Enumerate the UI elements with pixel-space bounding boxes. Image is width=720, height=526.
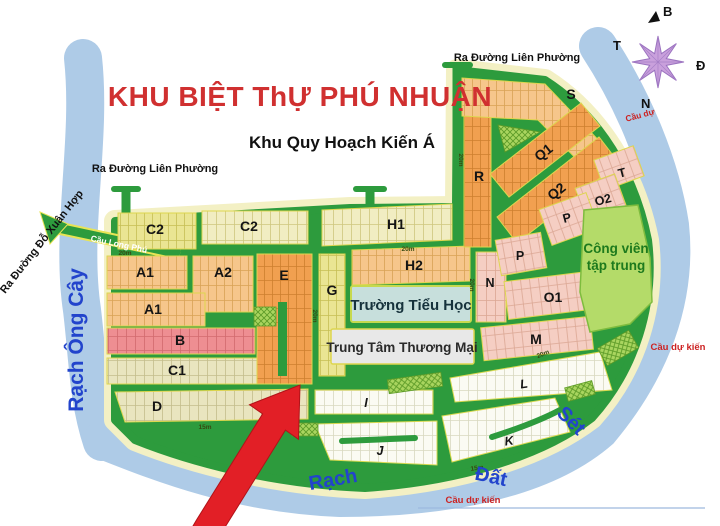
central-park-label-line2: tập trung — [587, 258, 646, 273]
block-label-e: E — [279, 267, 288, 283]
compass-north-label: B — [663, 4, 672, 19]
road-width-label: 20m — [457, 153, 464, 166]
map-title: KHU BIỆT ThỰ PHÚ NHUẬN — [108, 81, 492, 112]
block-label-d: D — [152, 398, 162, 414]
block-i — [315, 390, 433, 414]
park-patch — [254, 307, 276, 326]
block-label-b: B — [175, 332, 185, 348]
river-label-ong-cay: Rạch Ông Cây — [64, 268, 88, 412]
mall-label: Trung Tâm Thương Mại — [326, 340, 477, 355]
block-label-g: G — [327, 282, 338, 298]
road-j-loop — [342, 438, 415, 441]
school-label: Trường Tiểu Học — [350, 297, 471, 314]
road-width-label: 20m — [401, 246, 414, 253]
block-label-c2-west: C2 — [146, 221, 164, 237]
block-label-h1: H1 — [387, 216, 405, 232]
block-label-o1: O1 — [544, 289, 563, 305]
central-park-label-line1: Công viên — [583, 241, 648, 256]
block-label-s: S — [566, 86, 575, 102]
road-width-label: 15m — [198, 424, 211, 431]
block-label-j: J — [377, 444, 385, 458]
bridge-label-du-kien-south: Cầu dự kiến — [446, 495, 501, 506]
block-label-n: N — [485, 276, 494, 290]
block-label-a1-upper: A1 — [136, 264, 154, 280]
block-label-p-lower: P — [516, 249, 524, 263]
block-label-a1-lower: A1 — [144, 301, 162, 317]
compass-north-pointer-icon — [648, 11, 660, 23]
compass-west-label: T — [613, 38, 621, 53]
block-label-h2: H2 — [405, 257, 423, 273]
compass-east-label: Đ — [696, 58, 705, 73]
exit-label-lien-phuong-north: Ra Đường Liên Phường — [454, 52, 580, 64]
block-label-r: R — [474, 168, 484, 184]
block-label-c1: C1 — [168, 362, 186, 378]
exit-label-lien-phuong-west: Ra Đường Liên Phường — [92, 163, 218, 175]
road-e-inner — [278, 302, 287, 376]
road-width-label: 20m — [311, 309, 318, 322]
compass-south-label: N — [641, 96, 650, 111]
map-canvas: C2 C2 H1 A1 A2 A1 B C1 D E G H2 N R S Q1… — [0, 0, 720, 526]
road-width-label: 20m — [468, 278, 475, 291]
bridge-label-du-kien-east: Cầu dự kiến — [651, 342, 706, 353]
block-j — [315, 421, 437, 465]
block-label-c2: C2 — [240, 218, 258, 234]
map-subtitle: Khu Quy Hoạch Kiến Á — [249, 133, 435, 152]
block-label-a2: A2 — [214, 264, 232, 280]
block-label-i: I — [364, 396, 368, 410]
subdivision-map: C2 C2 H1 A1 A2 A1 B C1 D E G H2 N R S Q1… — [0, 0, 720, 526]
block-label-m: M — [530, 331, 542, 347]
